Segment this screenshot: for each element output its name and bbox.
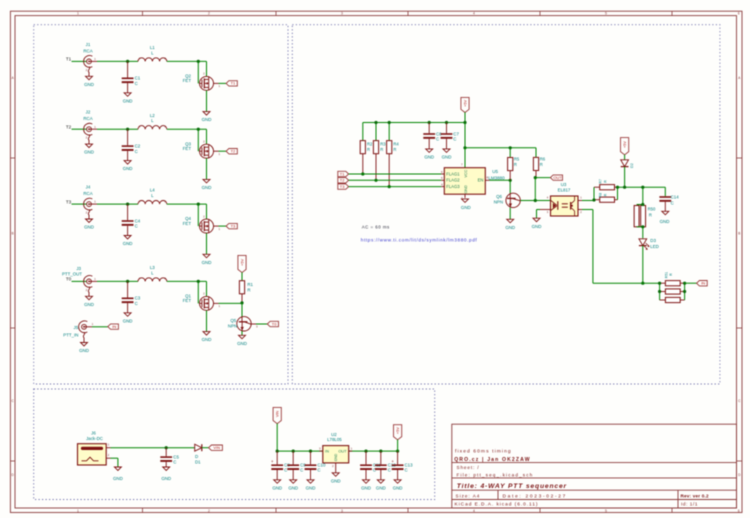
svg-text:GND: GND <box>306 485 316 490</box>
svg-text:NPN: NPN <box>494 200 503 205</box>
svg-text:4: 4 <box>473 12 475 16</box>
svg-text:R50: R50 <box>648 206 656 211</box>
svg-text:PTT_OUT: PTT_OUT <box>62 272 82 277</box>
svg-text:R7: R7 <box>599 179 603 184</box>
svg-text:LED: LED <box>650 244 659 249</box>
svg-text:GND: GND <box>461 205 471 210</box>
svg-text:GND: GND <box>660 219 670 224</box>
svg-text:OUT: OUT <box>553 175 562 180</box>
svg-text:GND: GND <box>123 318 133 323</box>
svg-text:GND: GND <box>376 485 386 490</box>
svg-text:GND: GND <box>442 155 452 160</box>
svg-text:GND: GND <box>202 117 212 122</box>
svg-text:4: 4 <box>473 509 475 513</box>
svg-text:3: 3 <box>341 12 343 16</box>
svg-text:T0: T0 <box>66 277 72 282</box>
svg-text:1: 1 <box>77 509 79 513</box>
svg-text:RCA: RCA <box>83 48 92 53</box>
svg-text:T2: T2 <box>340 178 345 183</box>
svg-text:C: C <box>388 468 391 473</box>
svg-text:D1: D1 <box>195 459 201 464</box>
svg-text:C14: C14 <box>671 195 680 200</box>
svg-text:R: R <box>393 147 396 152</box>
svg-text:3: 3 <box>341 509 343 513</box>
svg-text:C2: C2 <box>135 143 141 148</box>
svg-text:GND: GND <box>84 82 94 87</box>
svg-text:J5: J5 <box>74 325 79 330</box>
svg-text:fixed 60ms timing: fixed 60ms timing <box>455 448 512 454</box>
svg-text:C: C <box>135 224 138 229</box>
svg-text:C: C <box>671 200 674 205</box>
svg-text:VCC: VCC <box>464 169 468 177</box>
svg-text:C5: C5 <box>173 454 179 459</box>
svg-text:2: 2 <box>208 12 210 16</box>
svg-text:Jack-DC: Jack-DC <box>86 436 103 441</box>
svg-text:VIN: VIN <box>213 445 220 450</box>
svg-text:Sheet: /: Sheet: / <box>457 465 480 470</box>
svg-text:D: D <box>195 454 198 459</box>
svg-text:AC = 60 ms: AC = 60 ms <box>362 225 390 230</box>
svg-text:C13: C13 <box>405 462 414 467</box>
svg-text:GND: GND <box>202 185 212 190</box>
svg-text:https://www.ti.com/lit/ds/syml: https://www.ti.com/lit/ds/symlink/lm3880… <box>361 238 478 243</box>
svg-text:T3: T3 <box>66 199 72 204</box>
svg-text:OUT: OUT <box>338 449 347 454</box>
svg-text:EN: EN <box>478 178 484 183</box>
svg-text:Date: 2023-02-27: Date: 2023-02-27 <box>503 493 568 499</box>
svg-text:R1: R1 <box>247 282 253 287</box>
svg-text:R: R <box>367 147 370 152</box>
svg-text:RCA: RCA <box>83 191 92 196</box>
svg-text:GND: GND <box>84 302 94 307</box>
svg-text:FET: FET <box>183 146 192 151</box>
svg-text:GND: GND <box>272 485 282 490</box>
svg-text:+: + <box>391 459 394 464</box>
svg-text:+5V: +5V <box>623 141 627 148</box>
svg-text:File: ptt_seq_.kicad_sch: File: ptt_seq_.kicad_sch <box>457 472 534 477</box>
svg-text:C10: C10 <box>317 462 326 467</box>
svg-text:GND: GND <box>79 348 89 353</box>
svg-text:R51: R51 <box>664 272 668 278</box>
svg-text:IN: IN <box>701 281 705 286</box>
svg-text:GND: GND <box>288 485 298 490</box>
svg-text:C: C <box>173 460 176 465</box>
svg-text:+: + <box>271 459 274 464</box>
svg-text:C: C <box>284 468 287 473</box>
svg-text:U3: U3 <box>561 182 567 187</box>
svg-text:C: C <box>405 468 408 473</box>
svg-text:T1: T1 <box>340 171 345 176</box>
svg-text:R: R <box>380 147 383 152</box>
svg-text:R: R <box>247 287 250 292</box>
svg-text:GND: GND <box>464 185 468 194</box>
svg-text:IN: IN <box>325 449 329 454</box>
svg-text:+5V: +5V <box>240 259 244 266</box>
svg-text:T3: T3 <box>340 184 345 189</box>
svg-text:J4: J4 <box>86 185 91 190</box>
svg-text:R: R <box>540 162 543 167</box>
svg-text:T2: T2 <box>66 124 72 129</box>
svg-text:Id: 1/1: Id: 1/1 <box>681 502 698 507</box>
svg-text:6: 6 <box>738 12 740 16</box>
svg-text:FET: FET <box>183 78 192 83</box>
svg-text:LM3880: LM3880 <box>488 175 505 180</box>
svg-text:J2: J2 <box>86 110 91 115</box>
svg-text:D3: D3 <box>650 238 656 243</box>
svg-text:1: 1 <box>77 12 79 16</box>
svg-text:GND: GND <box>161 476 171 481</box>
svg-text:5: 5 <box>605 12 607 16</box>
svg-text:GND: GND <box>113 476 123 481</box>
svg-text:+5V: +5V <box>463 99 467 106</box>
svg-text:U5: U5 <box>492 169 498 174</box>
svg-text:GND: GND <box>393 485 403 490</box>
svg-text:KiCad E.D.A. kicad (6.0.11): KiCad E.D.A. kicad (6.0.11) <box>455 502 539 508</box>
svg-text:R: R <box>649 213 652 218</box>
svg-text:R: R <box>514 162 517 167</box>
svg-text:Size: A4: Size: A4 <box>456 493 481 498</box>
svg-text:T0: T0 <box>272 321 277 326</box>
svg-text:R5: R5 <box>514 156 520 161</box>
svg-text:Q5: Q5 <box>230 318 236 323</box>
svg-text:Rev: ver 0.2: Rev: ver 0.2 <box>681 493 709 498</box>
svg-text:L3: L3 <box>150 265 155 270</box>
svg-text:T1: T1 <box>231 81 236 86</box>
svg-text:GND: GND <box>361 485 371 490</box>
svg-text:FLAG3: FLAG3 <box>446 184 460 189</box>
svg-text:5: 5 <box>605 509 607 513</box>
svg-text:VIN: VIN <box>276 411 280 418</box>
svg-text:R6: R6 <box>540 156 546 161</box>
svg-text:C: C <box>135 81 138 86</box>
svg-text:GND: GND <box>84 225 94 230</box>
svg-text:C: C <box>453 137 456 142</box>
svg-text:EL817: EL817 <box>558 188 571 193</box>
svg-text:T2: T2 <box>231 149 236 154</box>
svg-text:FET: FET <box>183 298 192 303</box>
svg-text:C: C <box>436 137 439 142</box>
svg-text:GND: GND <box>123 241 133 246</box>
svg-text:GND: GND <box>202 260 212 265</box>
svg-text:J6: J6 <box>91 430 96 435</box>
svg-text:L78L05: L78L05 <box>327 437 342 442</box>
svg-text:R8: R8 <box>599 193 603 198</box>
svg-text:R3: R3 <box>380 141 386 146</box>
svg-text:FET: FET <box>183 221 192 226</box>
svg-text:L2: L2 <box>150 113 155 118</box>
svg-text:GND: GND <box>334 453 338 461</box>
svg-text:GND: GND <box>532 224 542 229</box>
svg-text:2: 2 <box>208 509 210 513</box>
svg-text:QRO.cz | Jan OK2ZAW: QRO.cz | Jan OK2ZAW <box>454 457 531 463</box>
svg-text:C: C <box>135 149 138 154</box>
svg-text:C: C <box>317 468 320 473</box>
svg-text:R4: R4 <box>393 141 399 146</box>
svg-text:GND: GND <box>424 155 434 160</box>
svg-text:6: 6 <box>738 509 740 513</box>
svg-text:RCA: RCA <box>83 116 92 121</box>
svg-text:+5V: +5V <box>396 427 400 434</box>
svg-text:C: C <box>300 468 303 473</box>
svg-text:Title: 4-WAY PTT sequencer: Title: 4-WAY PTT sequencer <box>457 483 567 490</box>
svg-text:GND: GND <box>202 337 212 342</box>
svg-text:D2: D2 <box>630 163 634 168</box>
svg-text:L1: L1 <box>150 45 155 50</box>
svg-text:PTT_IN: PTT_IN <box>63 332 78 337</box>
svg-text:NPN: NPN <box>228 324 237 329</box>
svg-text:C4: C4 <box>135 218 141 223</box>
svg-text:FLAG1: FLAG1 <box>446 171 460 176</box>
svg-text:Q6: Q6 <box>496 194 502 199</box>
svg-text:GND: GND <box>237 341 247 346</box>
svg-text:GND: GND <box>331 478 341 483</box>
svg-text:T1: T1 <box>66 57 72 62</box>
svg-text:C: C <box>135 301 138 306</box>
svg-text:GND: GND <box>123 166 133 171</box>
svg-text:L4: L4 <box>150 188 155 193</box>
svg-text:T3: T3 <box>231 223 236 228</box>
svg-text:J3: J3 <box>76 266 81 271</box>
svg-text:GND: GND <box>84 150 94 155</box>
svg-text:FLAG2: FLAG2 <box>446 178 460 183</box>
svg-text:IN: IN <box>112 324 116 329</box>
svg-text:R2: R2 <box>367 141 373 146</box>
svg-text:GND: GND <box>123 98 133 103</box>
svg-text:J1: J1 <box>86 42 91 47</box>
svg-text:C1: C1 <box>135 76 141 81</box>
svg-text:C3: C3 <box>135 296 141 301</box>
svg-text:GND: GND <box>505 225 515 230</box>
